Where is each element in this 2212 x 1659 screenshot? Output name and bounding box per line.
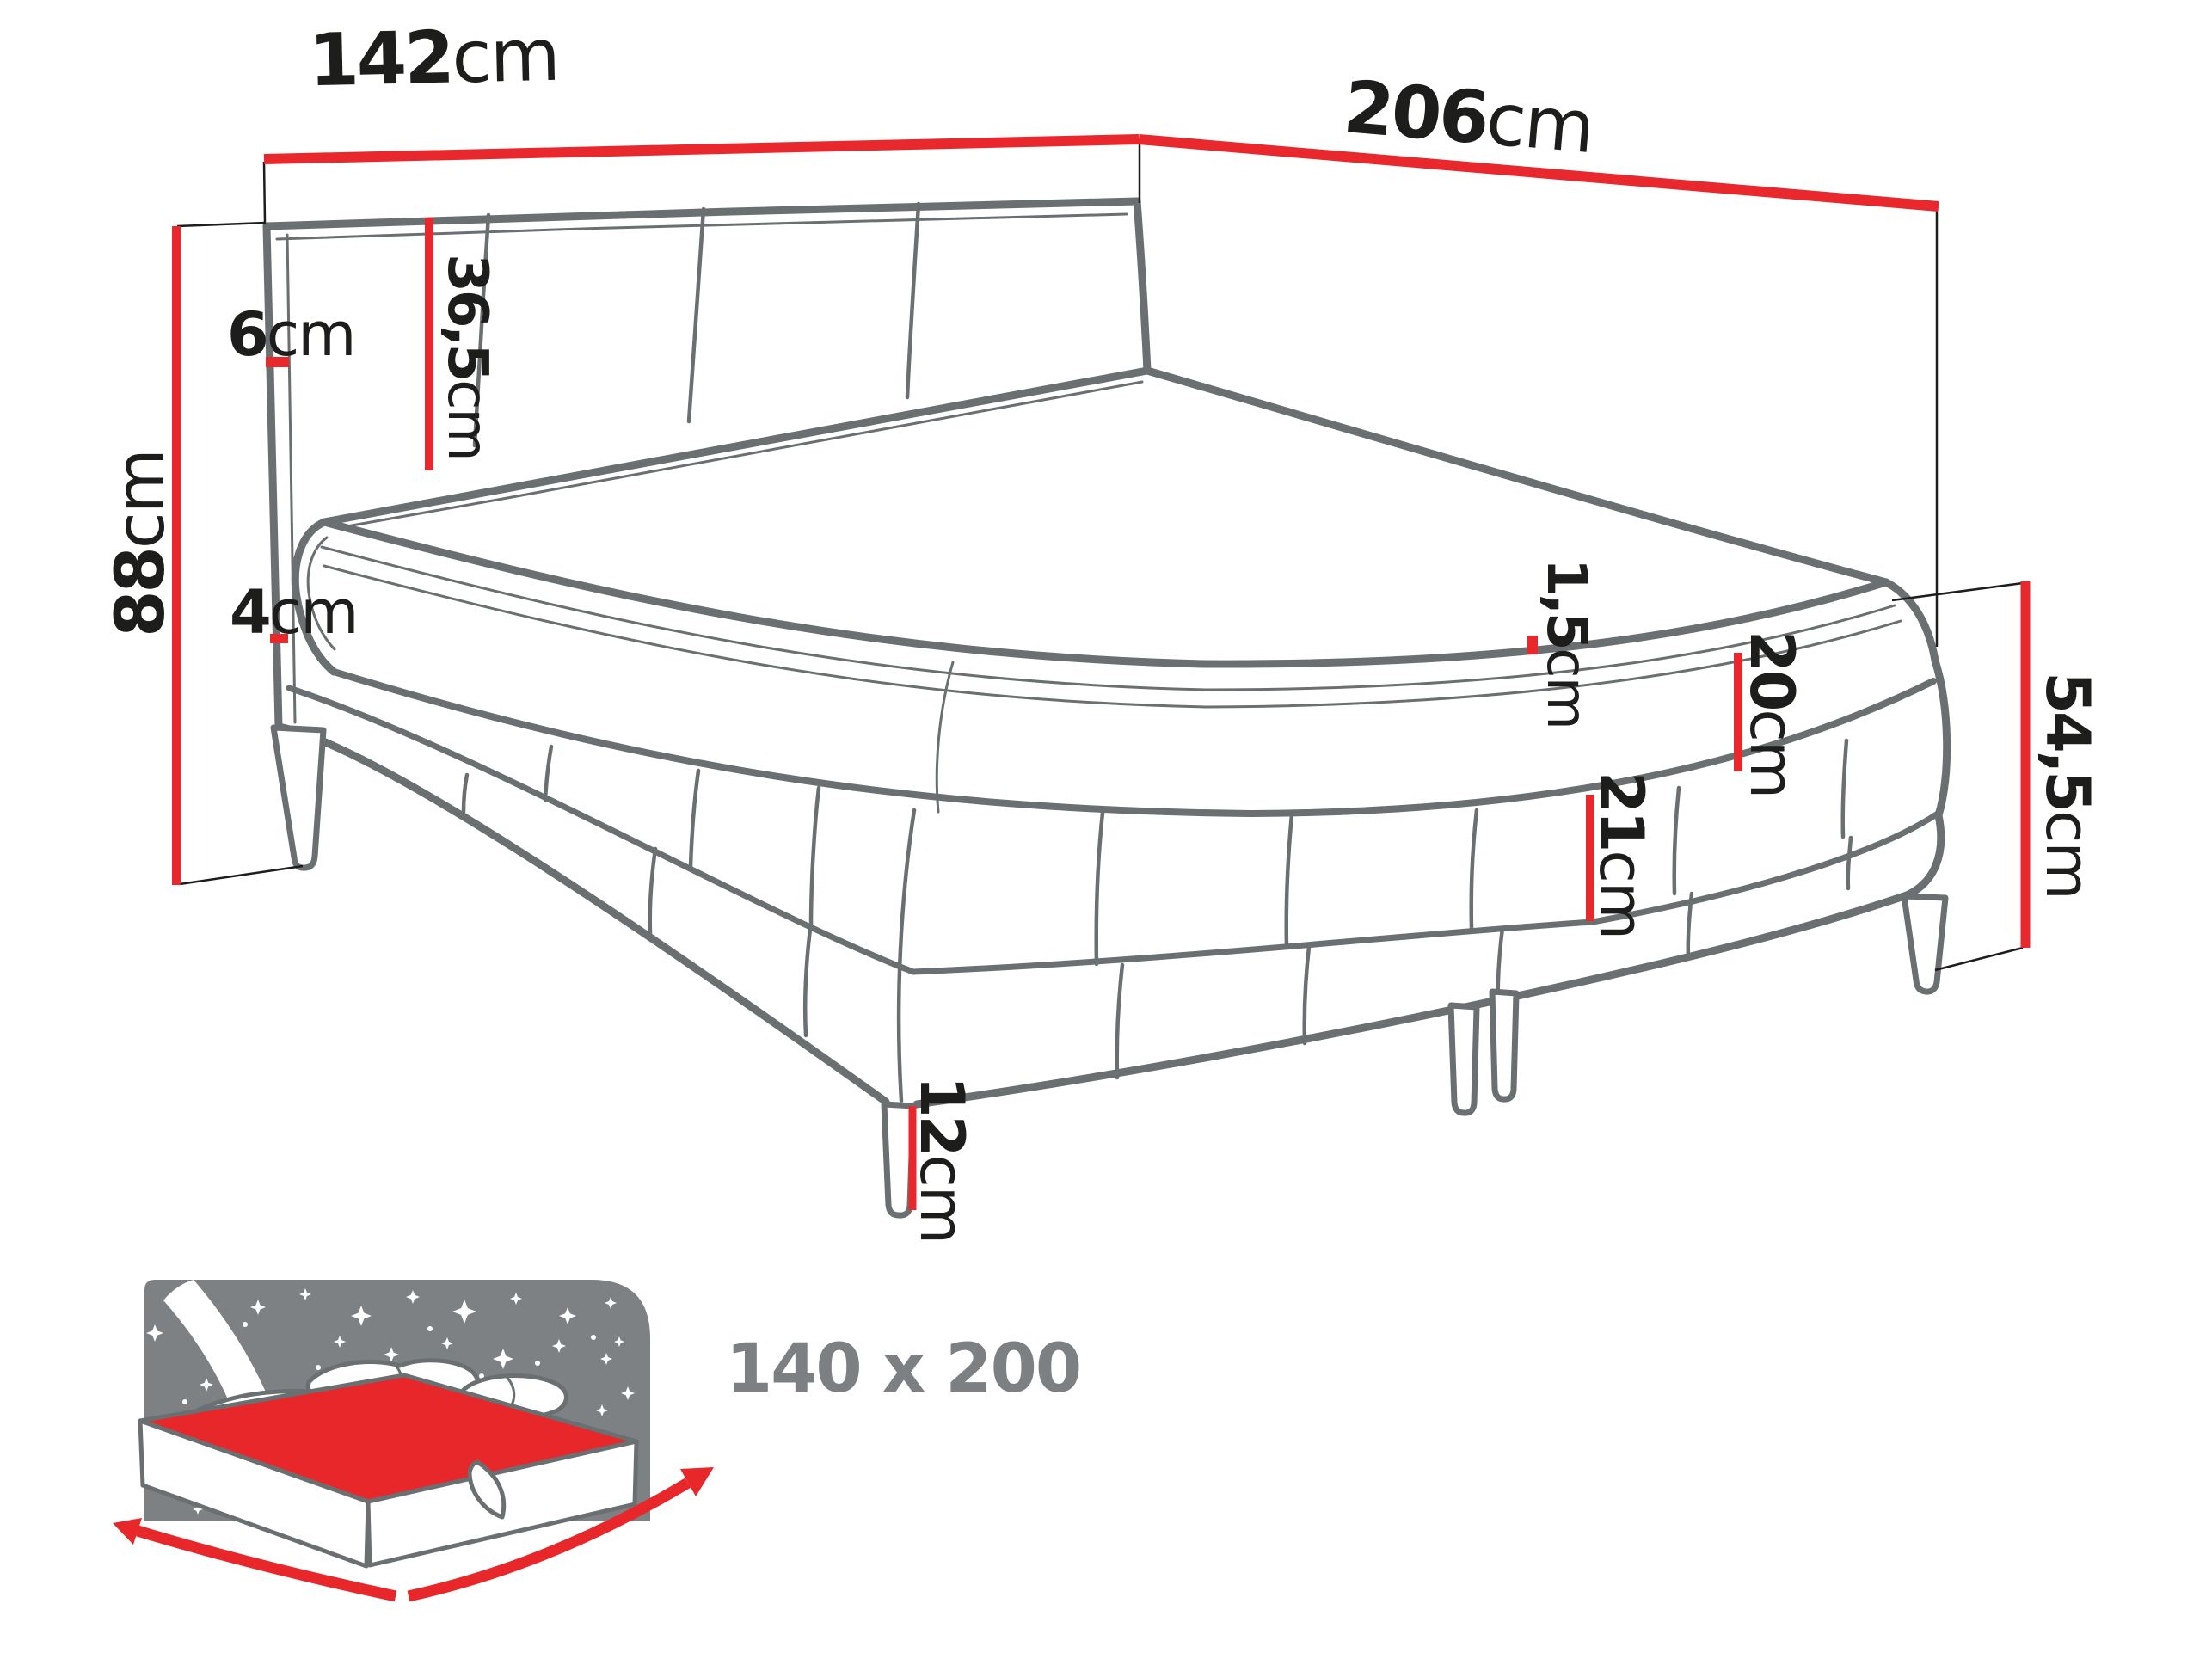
bed-leg (273, 728, 323, 868)
base-seam (1848, 838, 1851, 888)
size-icon: 140 x 200 (113, 1280, 1080, 1596)
bed-leg (1451, 1005, 1477, 1113)
base-seam (811, 788, 819, 927)
base-seam (545, 747, 551, 800)
bed-leg (1904, 896, 1945, 992)
base-seam (1097, 813, 1103, 964)
base-top-edge (334, 672, 1933, 814)
base-mid-seam (913, 814, 1938, 972)
base-seam (464, 775, 467, 812)
label-length: 206cm (1341, 65, 1597, 169)
extension-line (1935, 948, 2023, 970)
topper-line (322, 547, 1895, 690)
base-seam (1674, 788, 1679, 894)
extension-line (264, 162, 265, 222)
base-bottom-edge-head (279, 727, 886, 1102)
mattress-far-edge (1147, 371, 1886, 582)
base-seam (1287, 814, 1292, 947)
label-overhang: 4cm (230, 577, 357, 648)
headboard-seam (907, 204, 919, 397)
base-seam (805, 929, 810, 1035)
bed-leg (1492, 992, 1516, 1099)
label-topper: 1,5cm (1534, 558, 1598, 728)
bed-size-label: 140 x 200 (726, 1330, 1080, 1408)
dimension-line-width (264, 139, 1139, 159)
base-bottom-edge-front (917, 895, 1907, 1104)
base-seam (1305, 947, 1309, 1043)
label-total-height: 88cm (102, 450, 180, 636)
label-floor-to-top: 54,5cm (2032, 672, 2103, 898)
headboard-seam (689, 209, 704, 421)
base-right-bulge (1935, 661, 1947, 815)
icon-arrow-width-head (113, 1518, 142, 1545)
label-headboard-above-mattress: 36,5cm (435, 254, 499, 459)
label-mattress-height: 20cm (1736, 630, 1807, 797)
label-leg-height: 12cm (906, 1076, 977, 1243)
mattress-corner-seam (937, 662, 953, 812)
base-mid-seam (289, 688, 913, 972)
base-seam (1843, 740, 1846, 837)
extension-line (177, 223, 266, 226)
base-seam (650, 849, 655, 933)
mattress-front-edge (324, 522, 1886, 664)
base-corner-seam (899, 810, 914, 1101)
label-width: 142cm (308, 13, 560, 103)
base-seam (691, 771, 698, 867)
extension-line (180, 866, 303, 884)
label-base-height: 21cm (1586, 771, 1656, 938)
bed-dimension-diagram: 142cm 206cm 88cm 6cm 4cm 36,5cm 1,5cm 20… (0, 0, 2212, 1659)
base-seam (1472, 810, 1477, 928)
headboard-right-edge (1137, 201, 1147, 371)
base-seam (1117, 965, 1122, 1078)
bed-drawing (267, 201, 1947, 1215)
mattress-right-corner (1886, 582, 1935, 661)
extension-line (1892, 583, 2023, 600)
label-headboard-thickness: 6cm (227, 299, 354, 370)
